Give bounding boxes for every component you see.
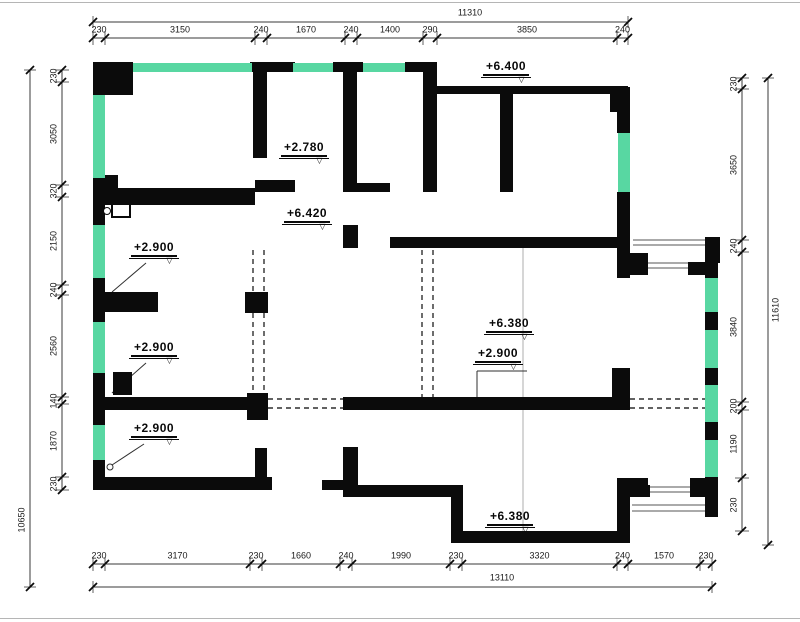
dimension-label: 1190 [730,434,739,453]
wall-segment [113,372,132,395]
dimension-label: 230 [91,26,106,35]
wall-segment [105,397,248,410]
dimension-label: 290 [422,26,437,35]
wall-segment [357,183,390,192]
dimension-label: 1870 [50,430,59,450]
wall-segment [93,278,105,322]
elevation-label: +6.400▽ [483,60,529,76]
dimension-label: 320 [50,183,59,198]
dimension-label: 3850 [517,26,537,35]
dimension-label: 240 [343,26,358,35]
wall-segment [437,86,628,94]
wall-segment [630,253,648,275]
dimension-label: 240 [253,26,268,35]
wall-segment [255,180,295,192]
dimension-label: 230 [730,76,739,91]
wall-segment [93,373,105,425]
dimension-label: 3050 [50,123,59,143]
elevation-triangle-icon: ▽ [510,360,517,373]
wall-segment [705,422,718,440]
dimension-label: 140 [50,393,59,408]
wall-segment [500,93,513,192]
elevation-label: +6.380▽ [486,317,532,333]
dimension-label: 1570 [654,552,674,561]
dimension-label: 1660 [291,552,311,561]
window-segment [93,95,105,178]
wall-segment [617,478,630,543]
wall-segment [105,292,158,312]
window-segment [705,278,718,312]
window-segment [293,63,333,72]
wall-segment [705,237,720,263]
wall-segment [705,368,718,385]
wall-segment [343,63,357,192]
elevation-label: +2.900▽ [131,241,177,257]
wall-segment [630,485,650,497]
dimension-label: 230 [91,552,106,561]
elevation-triangle-icon: ▽ [166,435,173,448]
dimension-total-top: 11310 [458,9,482,18]
elevation-triangle-icon: ▽ [316,154,323,167]
wall-segment [93,62,133,95]
elevation-label: +6.380▽ [487,510,533,526]
door-symbol-knob [103,207,111,215]
wall-segment [705,312,718,330]
elevation-label: +6.420▽ [284,207,330,223]
wall-segment [423,63,437,192]
dimension-label: 1990 [391,552,411,561]
dimension-label: 240 [338,552,353,561]
dimension-label: 3840 [730,317,739,337]
elevation-label: +2.900▽ [475,347,521,363]
dimension-total-left: 10650 [18,507,27,532]
dimension-total-right: 11610 [772,298,781,322]
dimension-label: 240 [50,282,59,297]
dimension-label: 2150 [50,231,59,251]
wall-segment [688,262,705,275]
wall-segment [245,292,268,313]
door-symbol [111,203,131,218]
wall-segment [705,263,718,278]
dimension-label: 3150 [170,26,190,35]
wall-segment [345,485,463,497]
wall-segment [93,178,105,225]
dimension-label: 3170 [167,552,187,561]
window-segment [705,440,718,477]
elevation-triangle-icon: ▽ [518,73,525,86]
dimension-label: 230 [698,552,713,561]
dimension-label: 230 [50,68,59,83]
window-segment [93,425,105,460]
wall-segment [255,448,267,477]
wall-segment [93,477,272,490]
window-segment [618,133,630,192]
wall-segment [705,477,718,517]
dimension-label: 240 [615,552,630,561]
elevation-triangle-icon: ▽ [319,220,326,233]
dimension-label: 240 [730,238,739,253]
window-segment [93,322,105,373]
wall-segment [343,397,612,410]
dimension-label: 2560 [50,336,59,356]
elevation-label: +2.900▽ [131,341,177,357]
dimension-label: 230 [248,552,263,561]
dimension-label: 3320 [529,552,549,561]
wall-segment [617,87,630,133]
dimension-total-bottom: 13110 [490,574,514,583]
dimension-label: 230 [448,552,463,561]
elevation-triangle-icon: ▽ [166,254,173,267]
dimension-label: 230 [50,476,59,491]
wall-segment [612,368,630,410]
window-segment [93,225,105,278]
elevation-label: +2.780▽ [281,141,327,157]
dimension-label: 3650 [730,154,739,174]
wall-segment [617,248,630,278]
floor-plan-canvas: 11310 13110 10650 11610 2303150240167024… [0,0,800,622]
window-segment [705,330,718,368]
dimension-label: 1400 [380,26,400,35]
wall-segment [253,62,267,158]
dimension-label: 200 [730,398,739,413]
wall-segment [343,225,358,248]
elevation-triangle-icon: ▽ [166,354,173,367]
elevation-label: +2.900▽ [131,422,177,438]
elevation-triangle-icon: ▽ [522,523,529,536]
wall-segment [451,531,630,543]
dimension-label: 240 [615,26,630,35]
dimension-label: 230 [730,497,739,512]
elevation-triangle-icon: ▽ [521,330,528,343]
wall-segment [690,478,705,497]
window-segment [363,63,405,72]
dimension-label: 1670 [296,26,316,35]
wall-segment [247,393,268,420]
window-segment [133,63,252,72]
window-segment [705,385,718,422]
wall-segment [390,237,630,248]
